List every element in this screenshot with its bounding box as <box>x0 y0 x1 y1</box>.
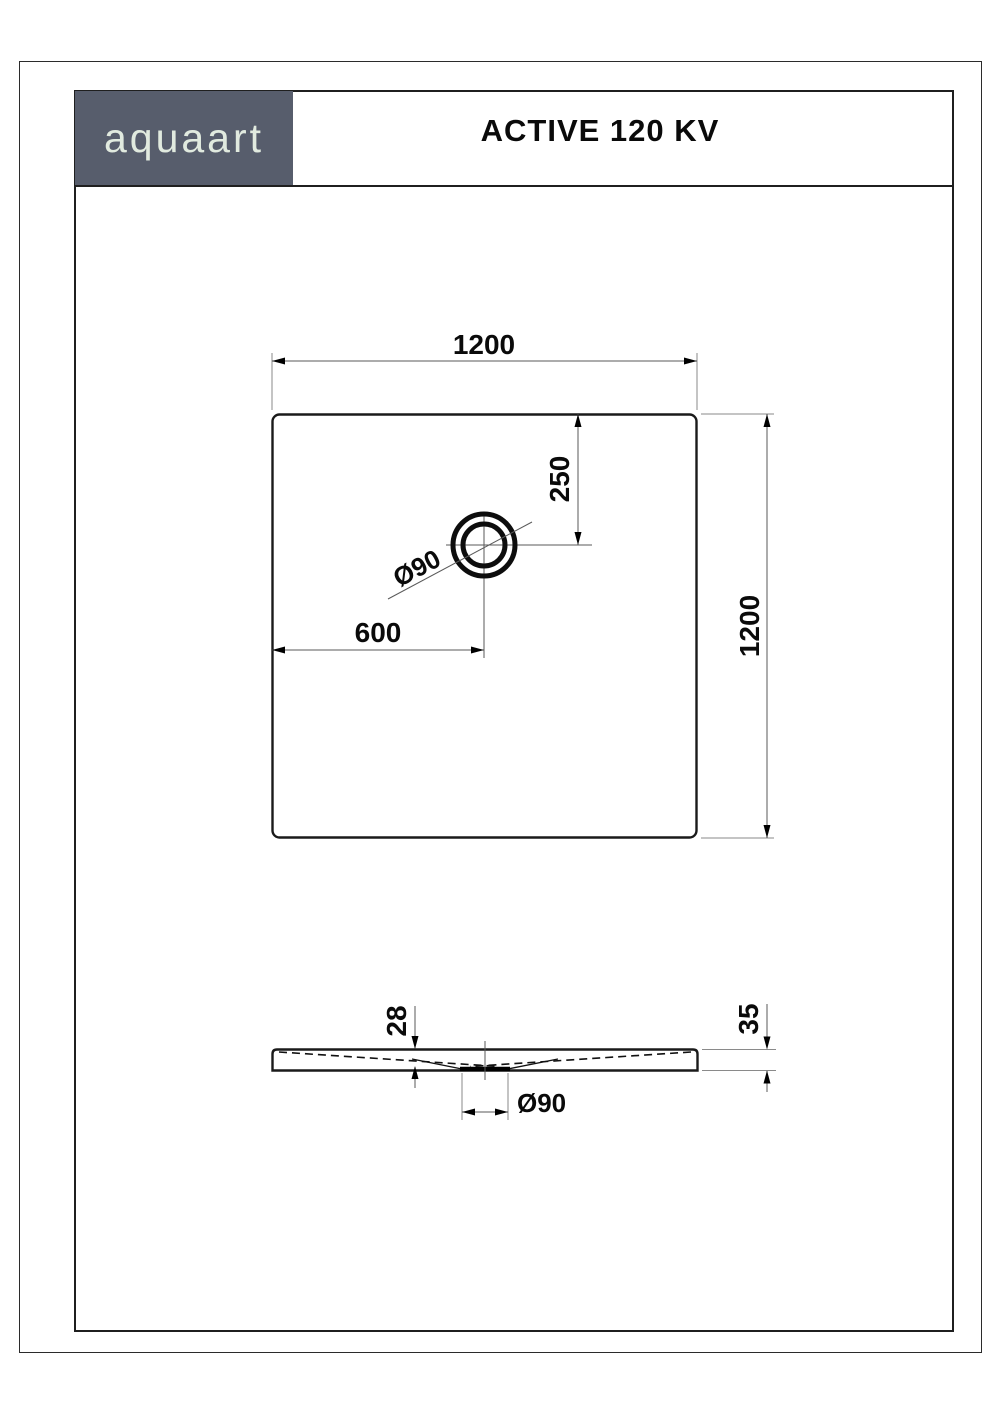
dim-drain-from-left-label: 600 <box>355 617 402 648</box>
arrowhead <box>471 647 484 654</box>
dim-depth-to-drain-label: 28 <box>381 1005 412 1036</box>
dim-depth-to-drain: 28 <box>381 1005 419 1088</box>
arrowhead <box>462 1109 475 1116</box>
arrowhead <box>575 532 582 545</box>
drain-diameter-label: Ø90 <box>388 543 445 593</box>
slope-hidden-line-right <box>470 1052 691 1067</box>
section-drain-diameter-label: Ø90 <box>517 1088 566 1118</box>
dim-height-label: 1200 <box>734 595 765 657</box>
top-view: 1200 1200 250 <box>272 329 774 838</box>
dim-drain-from-top-label: 250 <box>544 456 575 503</box>
dim-width: 1200 <box>272 329 697 410</box>
arrowhead <box>412 1066 419 1079</box>
drawing-sheet: aquaart ACTIVE 120 KV 1200 <box>0 0 1000 1415</box>
arrowhead <box>764 414 771 427</box>
dim-edge-height: 35 <box>702 1003 776 1092</box>
section-view: 28 35 Ø90 <box>273 1003 777 1120</box>
dim-drain-from-top: 250 <box>544 414 582 545</box>
dim-height: 1200 <box>701 414 774 838</box>
arrowhead <box>575 414 582 427</box>
technical-drawing: 1200 1200 250 <box>0 0 1000 1415</box>
dim-section-drain-diameter: Ø90 <box>462 1073 566 1120</box>
arrowhead <box>272 358 285 365</box>
slope-hidden-line-left <box>279 1052 499 1067</box>
arrowhead <box>412 1036 419 1049</box>
arrowhead <box>764 1071 771 1084</box>
dim-drain-from-left: 600 <box>272 617 484 654</box>
arrowhead <box>764 1037 771 1050</box>
arrowhead <box>272 647 285 654</box>
arrowhead <box>764 825 771 838</box>
dim-edge-height-label: 35 <box>733 1003 764 1034</box>
arrowhead <box>495 1109 508 1116</box>
dim-width-label: 1200 <box>453 329 515 360</box>
arrowhead <box>684 358 697 365</box>
